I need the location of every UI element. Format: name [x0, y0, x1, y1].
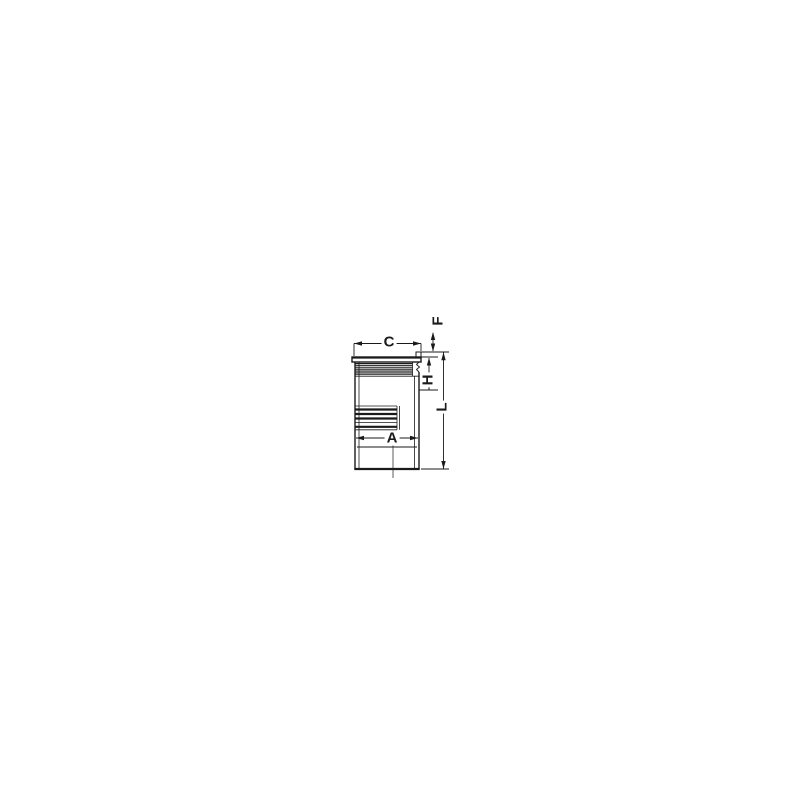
dim-label-C: C: [382, 335, 397, 350]
dimension-F: [431, 332, 435, 352]
liner-serration-band: [355, 362, 420, 376]
dim-label-A: A: [385, 431, 400, 446]
liner-flange: [352, 352, 421, 362]
page: C F H A L: [0, 0, 800, 800]
liner-body: [354, 362, 419, 478]
dim-label-H: H: [421, 373, 436, 388]
liner-seal-groove-band: [355, 406, 400, 430]
dim-label-L: L: [435, 400, 450, 413]
dim-label-F: F: [431, 314, 446, 327]
cylinder-liner-technical-drawing: [0, 0, 800, 800]
